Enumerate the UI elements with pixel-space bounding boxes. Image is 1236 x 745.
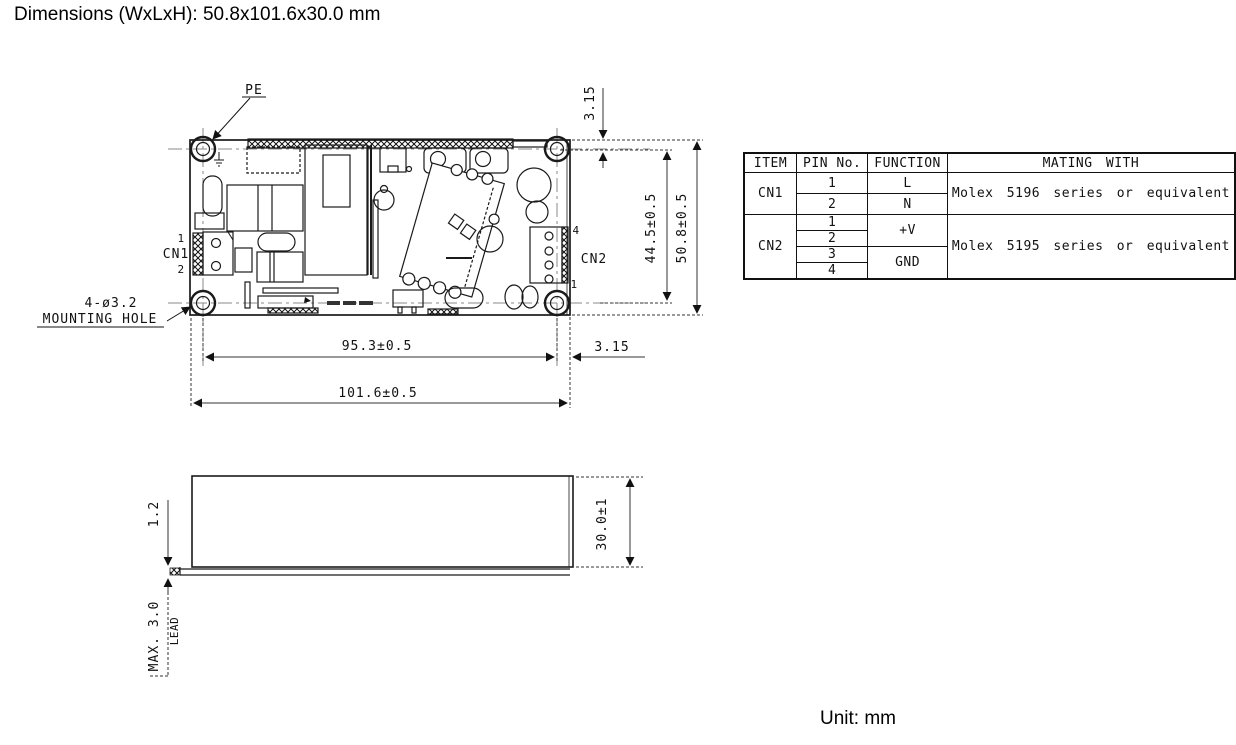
cn2-pin-1: 1 xyxy=(797,215,868,231)
dim-hole-span-vertical: 44.5±0.5 xyxy=(644,193,659,264)
unit-note: Unit: mm xyxy=(820,708,896,730)
side-view xyxy=(170,476,573,575)
mounting-hole-note-line1: 4-ø3.2 xyxy=(85,296,138,311)
pe-label: PE xyxy=(245,83,263,98)
cn2-pin-2: 2 xyxy=(797,231,868,247)
cn2-pin-3: 3 xyxy=(797,247,868,263)
dim-lead-max: MAX. 3.0 xyxy=(147,601,162,672)
dim-hole-offset-right: 3.15 xyxy=(594,340,629,355)
cn1-label: CN1 xyxy=(163,247,189,262)
mounting-hole-note-line2: MOUNTING HOLE xyxy=(43,312,158,327)
dim-board-length: 101.6±0.5 xyxy=(338,386,417,401)
cn1-connector xyxy=(193,232,233,275)
table-row: CN2 1 +V Molex 5195 series or equivalent xyxy=(744,215,1235,231)
top-view-labels: PE 1 CN1 2 4 CN2 1 4-ø3.2 MOUNTING HOLE … xyxy=(43,83,690,401)
cn2-function-gnd: GND xyxy=(868,247,947,280)
cn2-pin-4: 4 xyxy=(797,263,868,280)
heatsink-plate xyxy=(398,158,511,305)
bottom-edge-components xyxy=(258,285,538,314)
cn1-pin-2: 2 xyxy=(797,194,868,215)
silkscreen-marking xyxy=(327,301,373,305)
pcb-side-profile xyxy=(170,567,570,575)
table-row: CN1 1 L Molex 5196 series or equivalent xyxy=(744,173,1235,194)
case-outline xyxy=(192,476,573,567)
cn2-mating: Molex 5195 series or equivalent xyxy=(947,215,1235,280)
cn1-function-n: N xyxy=(868,194,947,215)
dim-hole-offset-top: 3.15 xyxy=(583,85,598,120)
cn1-function-l: L xyxy=(868,173,947,194)
dim-case-height: 30.0±1 xyxy=(595,498,610,551)
cn1-pin1-label: 1 xyxy=(177,232,184,245)
table-header-row: ITEM PIN No. FUNCTION MATING WITH xyxy=(744,153,1235,173)
cn2-function-v: +V xyxy=(868,215,947,247)
dim-hole-span-horizontal: 95.3±0.5 xyxy=(342,339,413,354)
cn1-pin-1: 1 xyxy=(797,173,868,194)
cn2-connector xyxy=(530,227,568,283)
lead-label: LEAD xyxy=(168,617,181,646)
item-cn2: CN2 xyxy=(744,215,797,280)
cn2-pin1-label: 1 xyxy=(570,278,577,291)
col-header-function: FUNCTION xyxy=(868,153,947,173)
dim-pcb-thickness: 1.2 xyxy=(147,501,162,527)
datasheet-dimension-page: Dimensions (WxLxH): 50.8x101.6x30.0 mm xyxy=(0,0,1236,745)
cn1-mating: Molex 5196 series or equivalent xyxy=(947,173,1235,215)
item-cn1: CN1 xyxy=(744,173,797,215)
cn2-pin4-label: 4 xyxy=(572,224,579,237)
earth-symbol xyxy=(214,152,224,166)
mechanical-drawing: PE 1 CN1 2 4 CN2 1 4-ø3.2 MOUNTING HOLE … xyxy=(0,0,1236,745)
connector-table: ITEM PIN No. FUNCTION MATING WITH CN1 1 … xyxy=(743,152,1236,280)
top-view xyxy=(168,128,650,366)
col-header-mating: MATING WITH xyxy=(947,153,1235,173)
cn2-label: CN2 xyxy=(581,252,607,267)
col-header-item: ITEM xyxy=(744,153,797,173)
transformer-block xyxy=(305,145,378,278)
input-components xyxy=(195,147,303,308)
col-header-pin: PIN No. xyxy=(797,153,868,173)
side-view-labels: 1.2 30.0±1 MAX. 3.0 LEAD xyxy=(147,498,610,672)
dim-board-width: 50.8±0.5 xyxy=(675,193,690,264)
cn1-pin2-label: 2 xyxy=(177,263,184,276)
